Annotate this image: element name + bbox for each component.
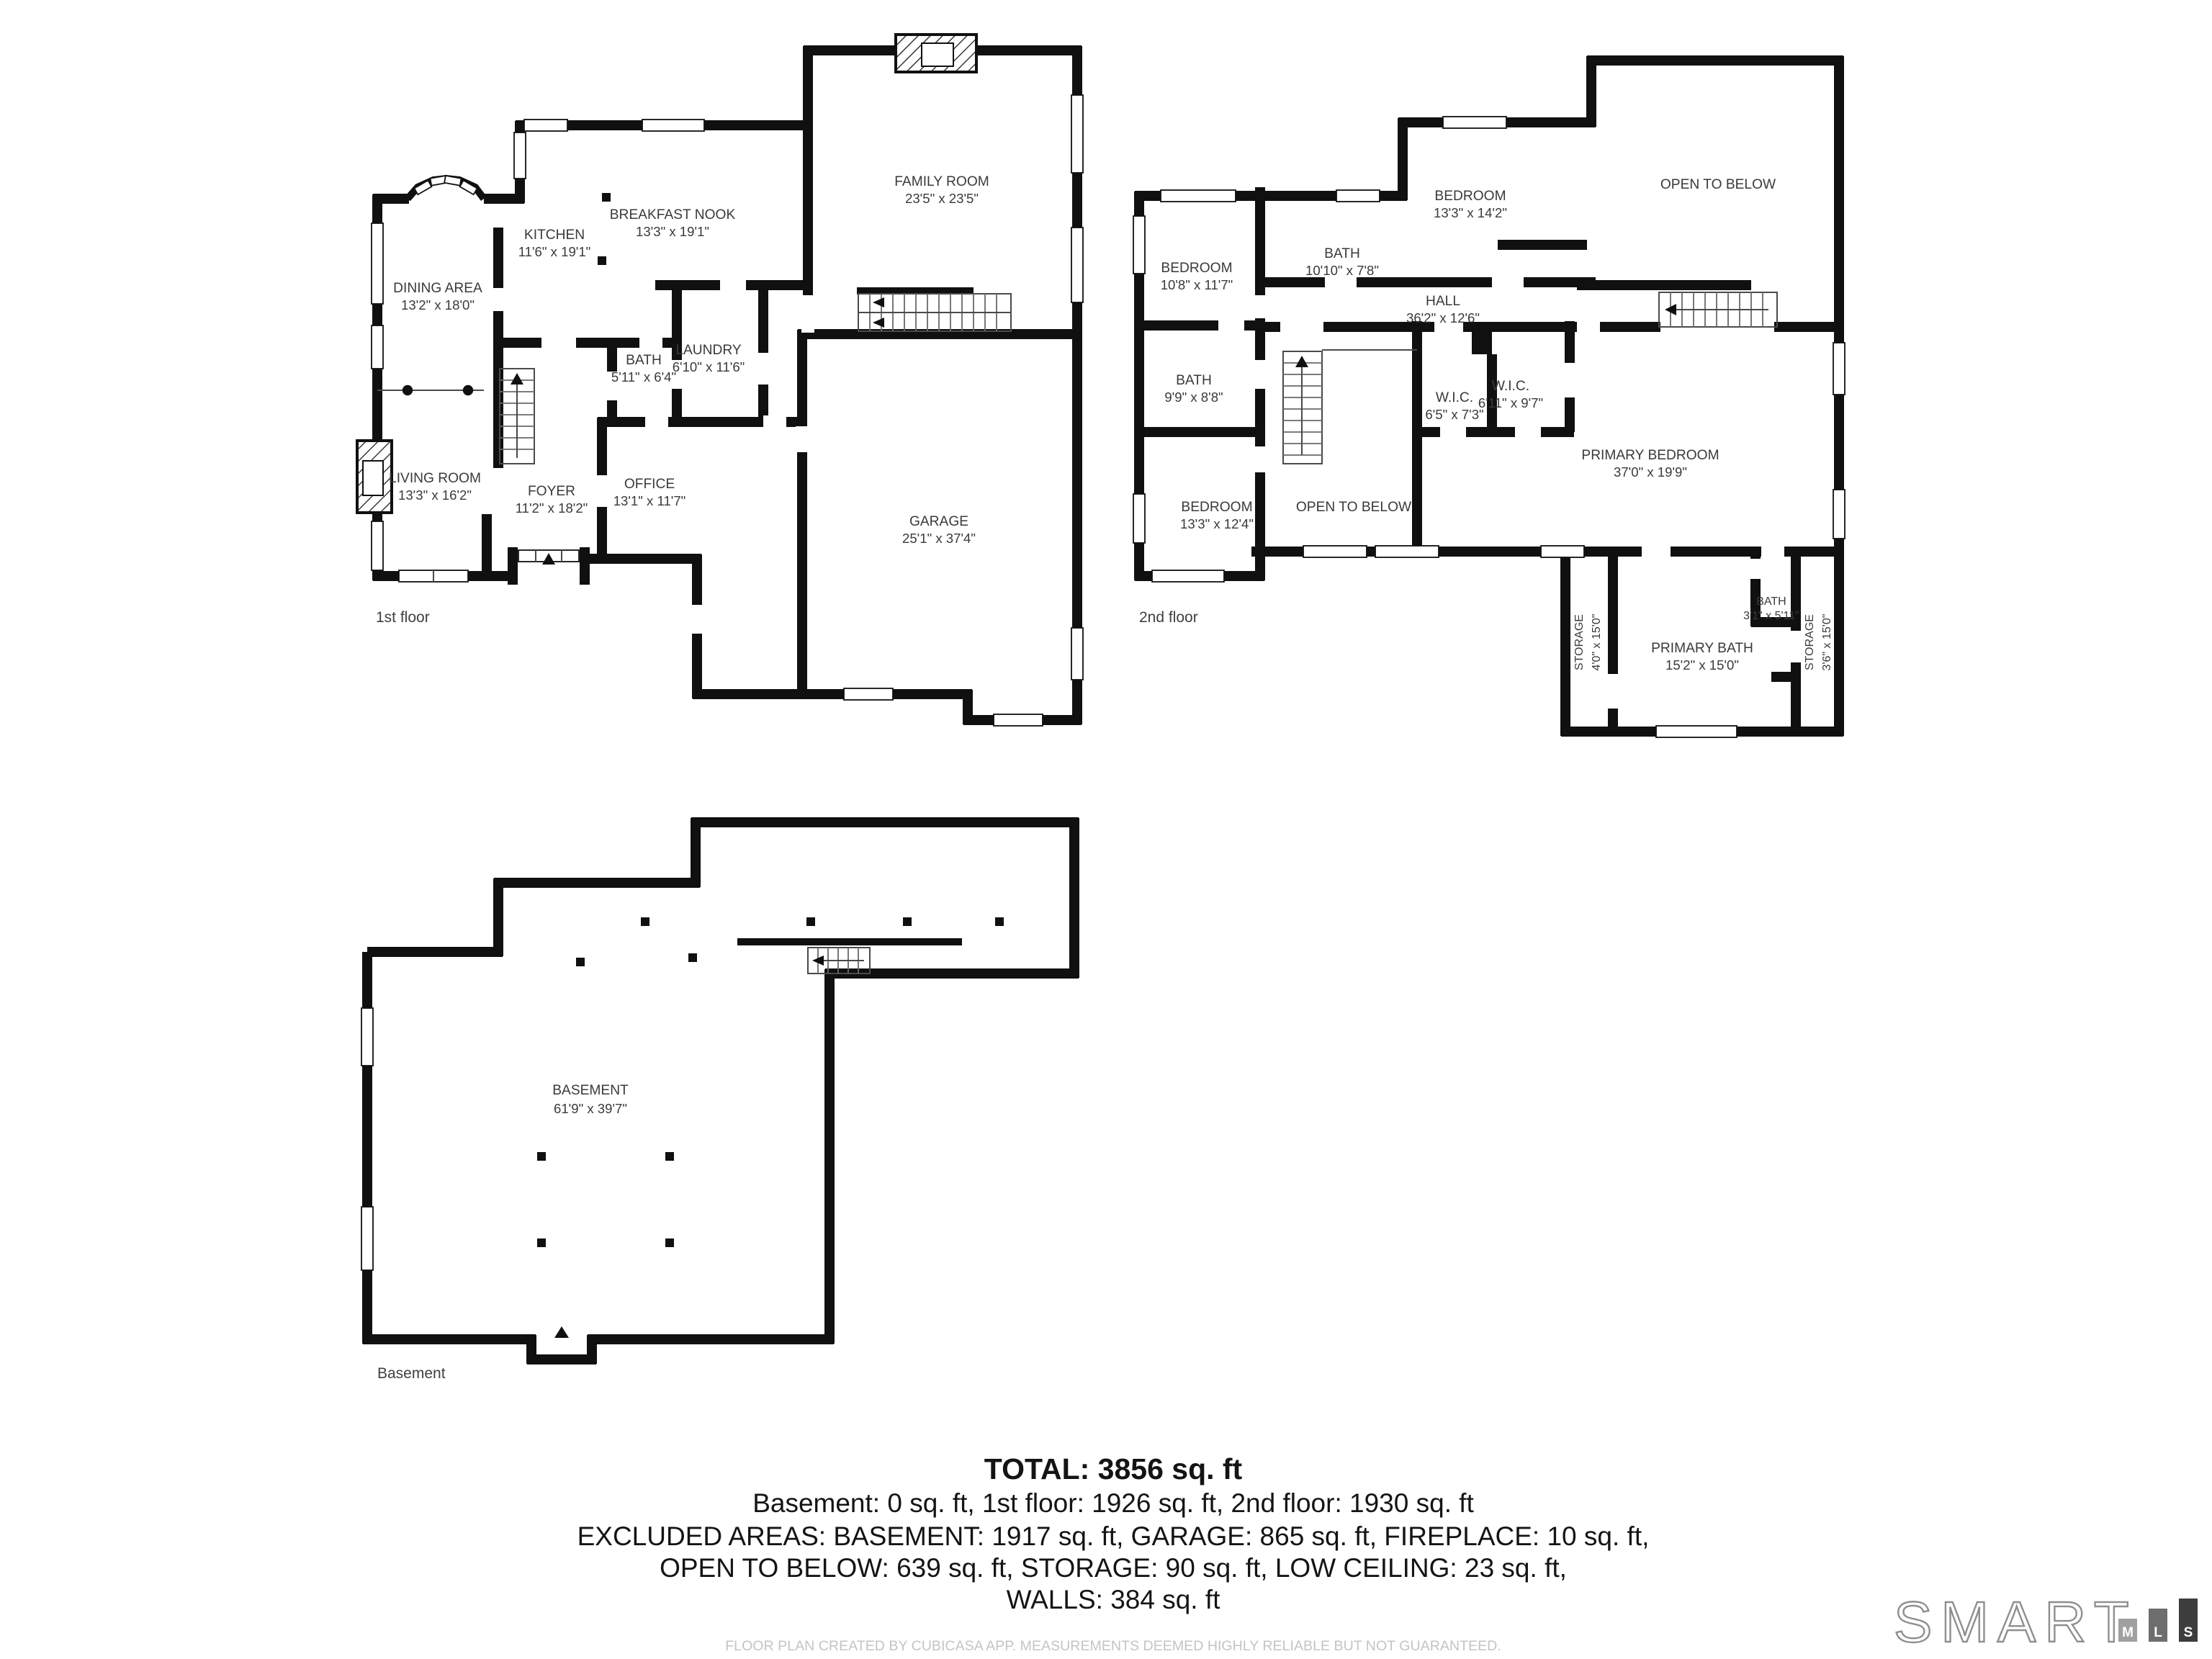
room-label-garage: GARAGE bbox=[909, 514, 968, 529]
room-dims-foyer: 11'2" x 18'2" bbox=[516, 500, 588, 516]
logo-letter-s: S bbox=[2184, 1625, 2193, 1640]
summary-line4: WALLS: 384 sq. ft bbox=[1007, 1585, 1221, 1614]
room-label-bedroom3: BEDROOM bbox=[1181, 500, 1252, 515]
second-floor-label: 2nd floor bbox=[1139, 609, 1198, 626]
room-dims-hall: 36'2" x 12'6" bbox=[1406, 310, 1480, 325]
room-label-bedroom1: BEDROOM bbox=[1161, 261, 1232, 276]
room-label-primary: PRIMARY BEDROOM bbox=[1581, 448, 1719, 463]
room-dims-storage2: 3'6" x 15'0" bbox=[1821, 614, 1833, 671]
room-label-hall: HALL bbox=[1426, 294, 1460, 309]
room-dims-bath3: 3'1" x 5'11" bbox=[1743, 610, 1799, 622]
room-dims-primary-bath: 15'2" x 15'0" bbox=[1665, 657, 1739, 673]
living-room-fireplace-icon bbox=[357, 441, 392, 513]
footer-disclaimer: FLOOR PLAN CREATED BY CUBICASA APP. MEAS… bbox=[725, 1638, 1501, 1654]
room-label-family: FAMILY ROOM bbox=[894, 174, 989, 189]
room-label-primary-bath: PRIMARY BATH bbox=[1651, 641, 1753, 656]
room-dims-office: 13'1" x 11'7" bbox=[613, 493, 686, 508]
basement-floor-label: Basement bbox=[377, 1365, 446, 1382]
room-label-kitchen: KITCHEN bbox=[524, 228, 585, 243]
room-dims-kitchen: 11'6" x 19'1" bbox=[518, 244, 591, 259]
chimney-block bbox=[1472, 327, 1492, 354]
room-dims-wic1: 6'5" x 7'3" bbox=[1425, 407, 1483, 422]
room-label-living: LIVING ROOM bbox=[389, 471, 481, 486]
room-label-bath1: BATH bbox=[1324, 246, 1360, 261]
room-dims-breakfast: 13'3" x 19'1" bbox=[636, 224, 709, 239]
room-label-wic1: W.I.C. bbox=[1436, 390, 1473, 405]
room-label-storage1: STORAGE bbox=[1573, 614, 1586, 670]
room-dims-bath1f: 5'11" x 6'4" bbox=[611, 369, 676, 385]
summary-line1: Basement: 0 sq. ft, 1st floor: 1926 sq. … bbox=[752, 1488, 1474, 1518]
room-label-bath1f: BATH bbox=[626, 353, 662, 368]
room-label-foyer: FOYER bbox=[528, 484, 575, 499]
room-dims-basement: 61'9" x 39'7" bbox=[554, 1101, 627, 1116]
room-dims-bath1: 10'10" x 7'8" bbox=[1305, 263, 1379, 278]
logo-letter-l: L bbox=[2154, 1625, 2162, 1640]
logo-word: SMART bbox=[1894, 1590, 2138, 1654]
floor-plan-page: DINING AREA 13'2" x 18'0" KITCHEN 11'6" … bbox=[0, 0, 2212, 1659]
room-label-laundry: LAUNDRY bbox=[675, 343, 742, 358]
room-dims-bedroom3: 13'3" x 12'4" bbox=[1180, 516, 1254, 531]
room-dims-living: 13'3" x 16'2" bbox=[398, 487, 472, 503]
room-dims-primary: 37'0" x 19'9" bbox=[1614, 464, 1687, 480]
summary-line3: OPEN TO BELOW: 639 sq. ft, STORAGE: 90 s… bbox=[660, 1553, 1567, 1583]
page-background bbox=[0, 0, 2212, 1659]
room-dims-storage1: 4'0" x 15'0" bbox=[1591, 614, 1603, 671]
room-label-storage2: STORAGE bbox=[1804, 614, 1816, 670]
summary-total: TOTAL: 3856 sq. ft bbox=[984, 1452, 1243, 1485]
room-label-dining: DINING AREA bbox=[393, 281, 482, 296]
family-room-fireplace-icon bbox=[896, 35, 976, 72]
room-dims-bedroom2: 13'3" x 14'2" bbox=[1434, 205, 1507, 220]
first-floor-label: 1st floor bbox=[376, 609, 430, 626]
room-dims-family: 23'5" x 23'5" bbox=[905, 191, 979, 206]
room-label-open-mid: OPEN TO BELOW bbox=[1296, 500, 1412, 515]
room-dims-bath2: 9'9" x 8'8" bbox=[1164, 390, 1223, 405]
logo-letter-m: M bbox=[2122, 1625, 2134, 1640]
room-label-office: OFFICE bbox=[624, 477, 675, 492]
room-dims-garage: 25'1" x 37'4" bbox=[902, 531, 976, 546]
room-label-open-upper: OPEN TO BELOW bbox=[1660, 177, 1776, 192]
summary-line2: EXCLUDED AREAS: BASEMENT: 1917 sq. ft, G… bbox=[577, 1521, 1650, 1551]
room-dims-dining: 13'2" x 18'0" bbox=[401, 297, 475, 313]
room-label-bath3: BATH bbox=[1756, 595, 1786, 608]
room-label-breakfast: BREAKFAST NOOK bbox=[610, 207, 736, 222]
room-dims-bedroom1: 10'8" x 11'7" bbox=[1161, 277, 1233, 292]
room-dims-wic2: 6'11" x 9'7" bbox=[1478, 395, 1543, 410]
room-label-bedroom2: BEDROOM bbox=[1434, 189, 1506, 204]
room-label-bath2: BATH bbox=[1176, 373, 1212, 388]
room-dims-laundry: 6'10" x 11'6" bbox=[673, 359, 745, 374]
room-label-wic2: W.I.C. bbox=[1492, 379, 1529, 394]
room-label-basement: BASEMENT bbox=[552, 1083, 629, 1098]
